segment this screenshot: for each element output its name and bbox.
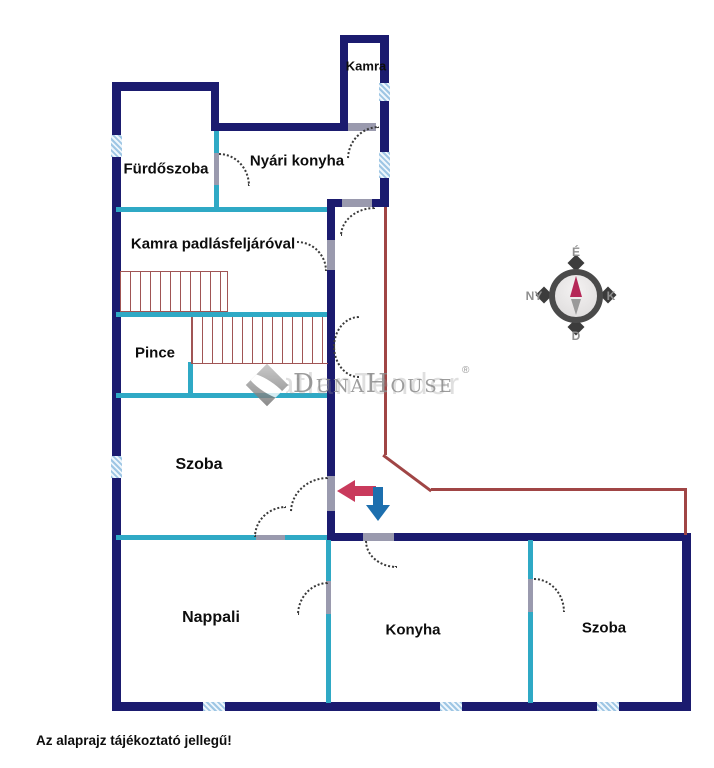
lintel-room-left-door	[327, 476, 335, 511]
compass-label-east: K	[607, 289, 616, 303]
partition-bathroom-bottom	[116, 207, 327, 212]
room-label-kamra-padlas: Kamra padlásfeljáróval	[131, 236, 295, 253]
wall-bathroom-top	[112, 82, 219, 91]
compass-label-west: NY	[526, 289, 543, 303]
window-pantry-lower	[379, 152, 390, 178]
stairs-cellar	[191, 317, 328, 364]
door-arc-bathroom	[219, 153, 250, 186]
room-label-nappali: Nappali	[182, 609, 240, 627]
compass-label-south: D	[572, 329, 581, 343]
room-label-szoba-right: Szoba	[582, 620, 626, 637]
door-arc-attic-pantry	[297, 241, 327, 271]
wall-pantry-left	[340, 35, 348, 131]
door-arc-room-bottom	[254, 506, 286, 537]
boundary-line-diagonal	[382, 454, 432, 492]
lintel-attic-pantry-door	[327, 240, 335, 270]
window-kitchen	[440, 702, 462, 711]
compass-south-needle-icon	[571, 299, 581, 315]
room-label-konyha: Konyha	[385, 622, 440, 639]
watermark-registered: ®	[462, 365, 469, 376]
wall-right	[682, 533, 691, 711]
disclaimer-note: Az alaprajz tájékoztató jellegű!	[36, 733, 232, 748]
dunahouse-logo-icon	[246, 364, 288, 406]
door-arc-room-right	[534, 578, 565, 612]
room-label-nyari-konyha: Nyári konyha	[250, 153, 344, 170]
window-livingroom	[203, 702, 225, 711]
door-arc-room-left	[290, 477, 328, 512]
window-room-right	[597, 702, 619, 711]
window-pantry-upper	[379, 83, 390, 101]
boundary-line-horizontal	[431, 488, 687, 491]
room-label-furdoszoba: Fürdőszoba	[124, 161, 209, 178]
lintel-kitchen-door	[363, 533, 394, 541]
door-arc-kitchen	[365, 541, 397, 568]
lintel-room-right-door	[528, 579, 533, 612]
window-bathroom	[111, 135, 122, 157]
compass-north-needle-icon	[570, 276, 582, 297]
partition-room-bottom	[116, 535, 327, 540]
door-arc-double-upper	[333, 316, 359, 347]
room-label-szoba-left: Szoba	[175, 456, 222, 474]
partition-kitchen-room	[528, 540, 533, 703]
compass-label-north: É	[572, 245, 580, 259]
lintel-summerkitchen-door	[342, 199, 372, 207]
room-label-kamra-top: Kamra	[346, 59, 386, 74]
floor-plan: É K D NY IngatlanTender DunaHouse ® Kamr…	[0, 0, 714, 768]
partition-cellar-vertical	[188, 362, 193, 398]
door-arc-livingroom	[297, 582, 328, 615]
watermark-brand: DunaHouse	[293, 369, 454, 399]
boundary-line-vertical-right	[684, 488, 687, 535]
partition-livingroom-kitchen	[326, 540, 331, 703]
window-room-left	[111, 456, 122, 478]
wall-summerkitchen-top	[211, 123, 348, 131]
boundary-line-vertical-top	[384, 207, 387, 455]
door-arc-summerkitchen	[340, 207, 375, 236]
stairs-attic	[120, 271, 228, 312]
room-label-pince: Pince	[135, 345, 175, 362]
